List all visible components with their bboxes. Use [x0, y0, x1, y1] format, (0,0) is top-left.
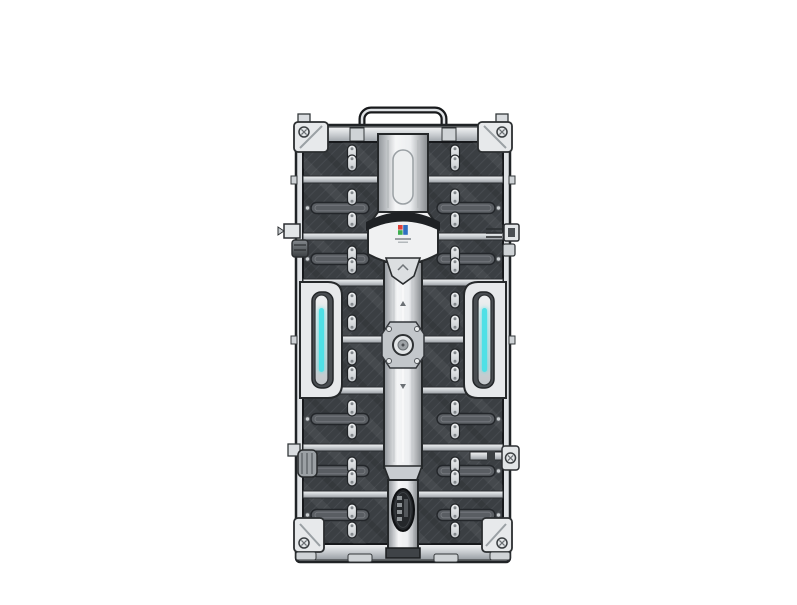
corner-screw-icon: [497, 127, 507, 137]
module-slot: [437, 414, 495, 425]
foot-tab: [296, 552, 316, 560]
connector-pin: [397, 517, 402, 521]
connector-socket: [404, 499, 408, 517]
product-photo: [0, 0, 797, 605]
hinge-mount-right: [442, 128, 456, 141]
module-slot: [311, 254, 369, 265]
corner-screw-icon: [497, 538, 507, 548]
connector-panel: [392, 489, 414, 531]
latch-screw-icon: [506, 453, 516, 463]
led-strip-right: [482, 308, 487, 372]
logo-text-bar: [395, 238, 411, 240]
led-strip-left: [319, 308, 324, 372]
side-handle-left: [300, 282, 342, 398]
hinge-mount-left: [350, 128, 364, 141]
logo-text-bar: [398, 242, 408, 244]
module-slot: [437, 203, 495, 214]
led-cabinet-rear-render: [0, 0, 797, 605]
side-handle-right: [464, 282, 506, 398]
module-slot: [311, 466, 369, 477]
module-slot: [311, 414, 369, 425]
spine-bottom-cap: [386, 548, 420, 558]
module-slot: [311, 203, 369, 214]
foot-tab: [490, 552, 510, 560]
connector-pin: [397, 503, 402, 507]
spine-logo-bump: [366, 212, 440, 264]
connector-pin: [397, 496, 402, 500]
connector-pin: [397, 510, 402, 514]
module-slot: [437, 466, 495, 477]
cabinet: [278, 110, 519, 562]
corner-screw-icon: [299, 538, 309, 548]
corner-screw-icon: [299, 127, 309, 137]
spine-oval-recess: [393, 150, 413, 204]
module-slot: [437, 254, 495, 265]
